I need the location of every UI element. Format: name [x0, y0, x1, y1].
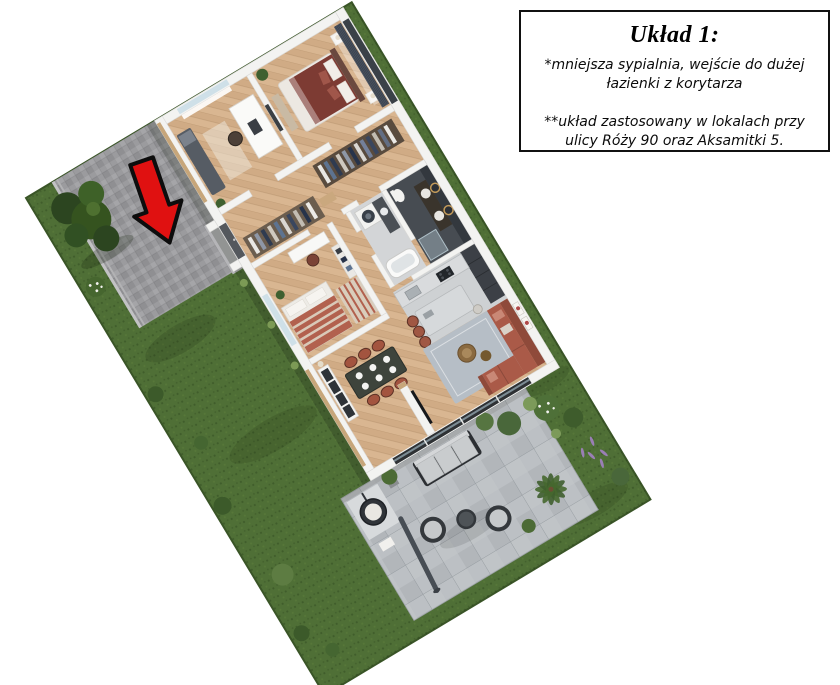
layout-title: Układ 1: [521, 23, 828, 47]
layout-note-1: *mniejsza sypialnia, wejście do dużej ła… [521, 56, 828, 94]
layout-annotation-box: Układ 1: *mniejsza sypialnia, wejście do… [519, 10, 830, 152]
layout-note-2: **układ zastosowany w lokalach przy ulic… [521, 113, 828, 151]
floorplan-page: Układ 1: *mniejsza sypialnia, wejście do… [0, 0, 840, 685]
